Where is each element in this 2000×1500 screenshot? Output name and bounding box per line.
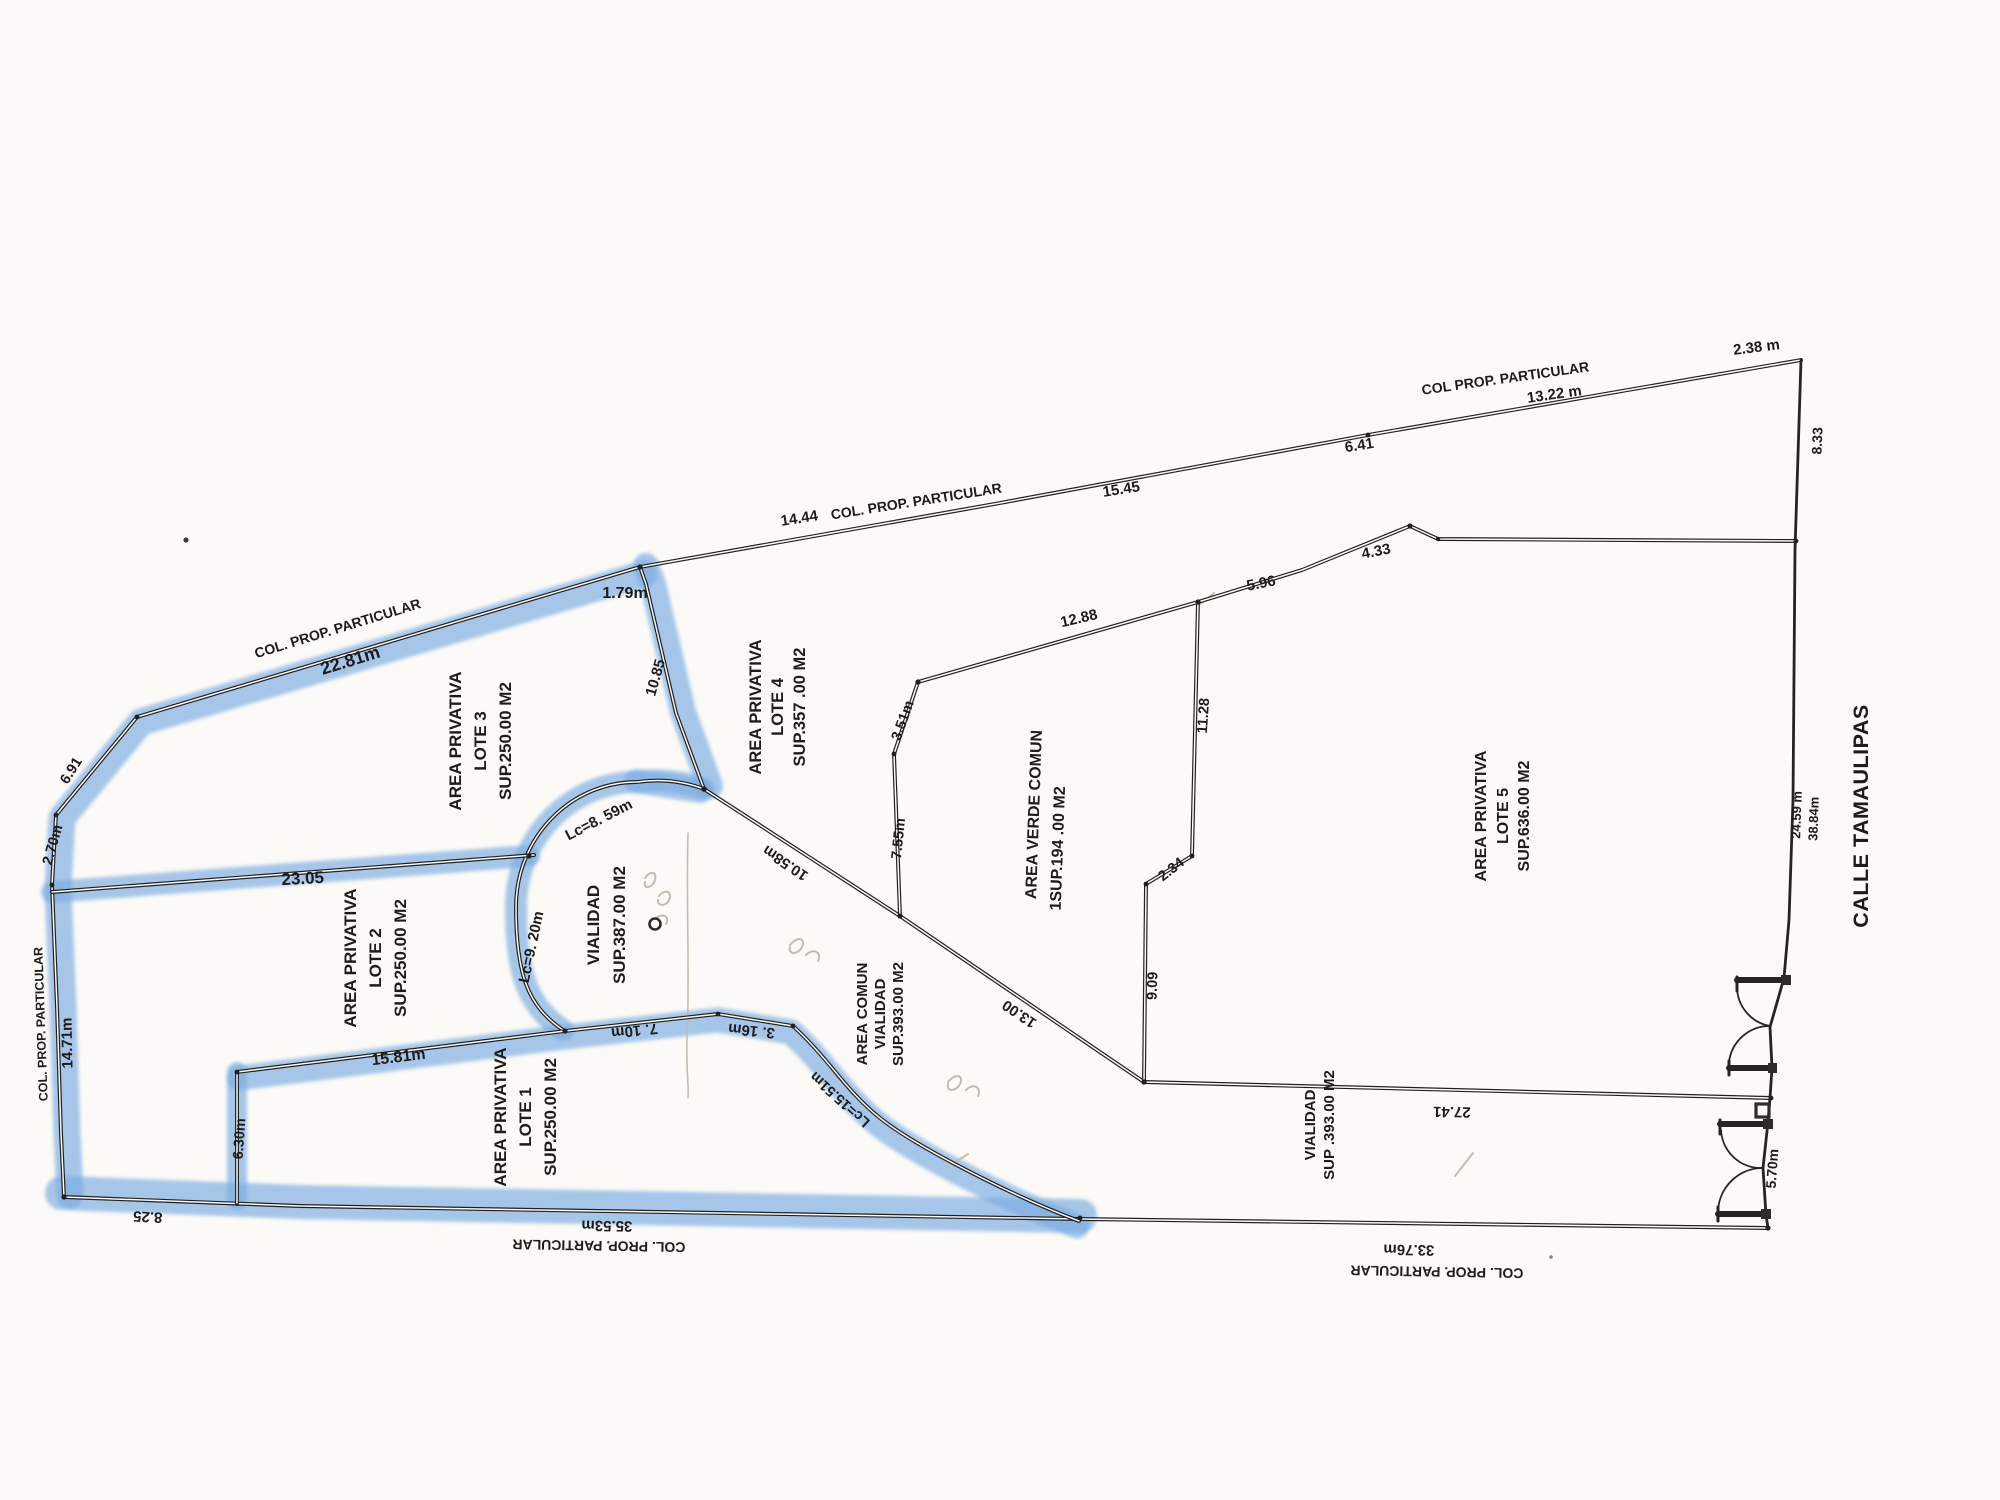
svg-text:AREA PRIVATIVA: AREA PRIVATIVA (747, 639, 765, 774)
svg-text:LOTE 2: LOTE 2 (366, 928, 385, 988)
svg-text:1.79m: 1.79m (602, 585, 647, 602)
svg-text:VIALIDAD: VIALIDAD (872, 978, 889, 1049)
svg-text:SUP.250.00 M2: SUP.250.00 M2 (541, 1058, 560, 1176)
svg-text:COL. PROP. PARTICULAR: COL. PROP. PARTICULAR (512, 1236, 685, 1255)
svg-text:27.41: 27.41 (1433, 1103, 1471, 1121)
svg-text:SUP .393.00 M2: SUP .393.00 M2 (1321, 1070, 1338, 1180)
svg-text:AREA PRIVATIVA: AREA PRIVATIVA (1473, 750, 1490, 881)
svg-text:SUP.393.00 M2: SUP.393.00 M2 (890, 962, 907, 1066)
svg-text:11.28: 11.28 (1195, 697, 1213, 734)
svg-text:24.59 m: 24.59 m (1788, 791, 1805, 839)
svg-text:SUP.387.00 M2: SUP.387.00 M2 (610, 866, 629, 984)
svg-text:6.30m: 6.30m (231, 1118, 250, 1160)
svg-text:VIALIDAD: VIALIDAD (1302, 1089, 1319, 1160)
svg-text:AREA PRIVATIVA: AREA PRIVATIVA (341, 888, 360, 1027)
svg-text:LOTE 4: LOTE 4 (769, 677, 787, 736)
svg-text:23.05: 23.05 (281, 868, 324, 889)
svg-text:SUP.357 .00 M2: SUP.357 .00 M2 (791, 648, 809, 767)
svg-text:9.09: 9.09 (1145, 971, 1162, 1000)
svg-text:33.76m: 33.76m (1383, 1241, 1434, 1259)
svg-text:5.70m: 5.70m (1763, 1148, 1782, 1189)
svg-text:LOTE 3: LOTE 3 (471, 711, 490, 771)
svg-text:8.25: 8.25 (133, 1207, 163, 1226)
svg-text:8.33: 8.33 (1809, 427, 1826, 455)
svg-text:AREA PRIVATIVA: AREA PRIVATIVA (491, 1047, 510, 1186)
svg-text:CALLE TAMAULIPAS: CALLE TAMAULIPAS (1849, 704, 1873, 927)
svg-text:COL. PROP. PARTICULAR: COL. PROP. PARTICULAR (1350, 1262, 1523, 1281)
svg-text:SUP.636.00 M2: SUP.636.00 M2 (1516, 760, 1533, 871)
svg-text:14.71m: 14.71m (59, 1017, 77, 1068)
svg-text:AREA PRIVATIVA: AREA PRIVATIVA (446, 671, 465, 810)
svg-text:AREA COMUN: AREA COMUN (854, 963, 871, 1066)
svg-text:SUP.250.00 M2: SUP.250.00 M2 (391, 899, 410, 1017)
svg-text:LOTE 5: LOTE 5 (1495, 788, 1512, 844)
svg-text:35.53m: 35.53m (581, 1217, 632, 1235)
svg-text:LOTE 1: LOTE 1 (516, 1087, 535, 1147)
svg-text:VIALIDAD: VIALIDAD (584, 885, 603, 965)
svg-text:38.84m: 38.84m (1805, 797, 1822, 842)
svg-text:SUP.250.00 M2: SUP.250.00 M2 (496, 682, 515, 800)
